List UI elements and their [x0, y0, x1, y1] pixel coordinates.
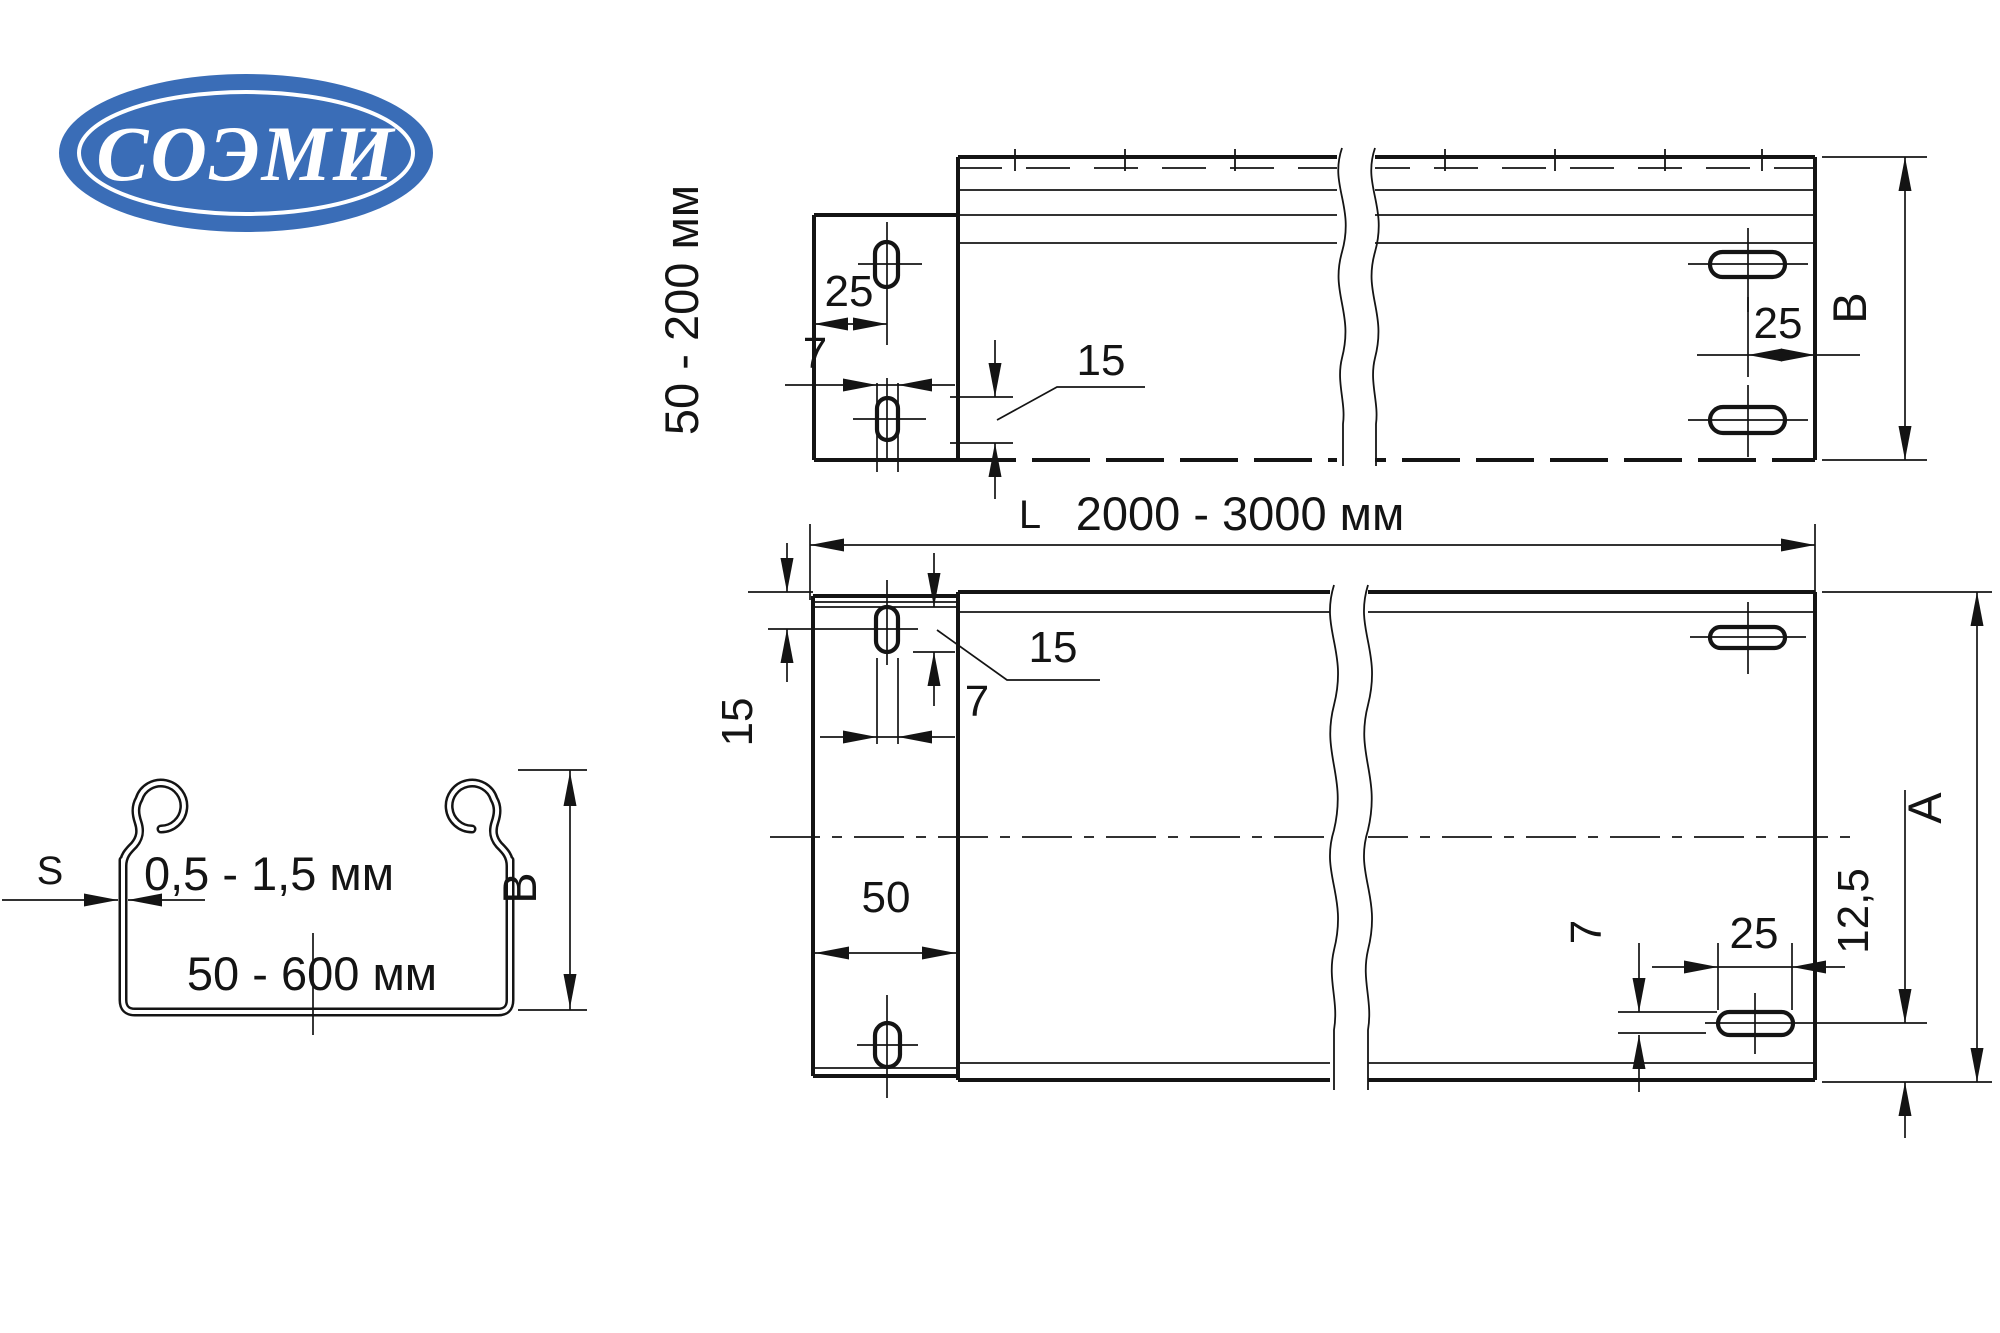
dim-label: 12,5 [1829, 868, 1878, 954]
plan-dim-7-top: 7 [820, 658, 989, 744]
side-dim-15: 15 [950, 336, 1145, 499]
plan-dim-50: 50 [813, 873, 958, 960]
plan-dim-15-slot: 15 [913, 553, 1100, 706]
dim-label: 25 [1754, 299, 1803, 348]
thickness-range-label: 0,5 - 1,5 мм [144, 847, 394, 900]
technical-drawing-page: СОЭМИ 50 - 200 мм [0, 0, 2000, 1333]
side-height-range-label: 50 - 200 мм [655, 185, 708, 435]
drawing-canvas: СОЭМИ 50 - 200 мм [0, 0, 2000, 1333]
length-value: 2000 - 3000 мм [1076, 487, 1405, 540]
dim-label: B [493, 872, 546, 903]
length-prefix: L [1019, 493, 1041, 537]
dim-label: 7 [803, 329, 827, 378]
width-range-label: 50 - 600 мм [187, 947, 437, 1000]
dim-label: 7 [1562, 920, 1611, 944]
dim-label: 25 [825, 267, 874, 316]
side-dim-7-left: 7 [785, 329, 955, 472]
dim-label: B [1823, 292, 1876, 323]
thickness-symbol: S [37, 849, 64, 893]
plan-dim-7-bottom: 7 [1562, 920, 1717, 1092]
dim-label: 25 [1730, 909, 1779, 958]
plan-view: 15 15 7 50 [713, 543, 1992, 1138]
plan-dim-15-edge: 15 [713, 543, 813, 746]
dim-label: A [1898, 792, 1951, 824]
dim-label: 7 [965, 677, 989, 726]
dim-label: 15 [1077, 336, 1126, 385]
logo: СОЭМИ [59, 74, 433, 232]
dim-label: 15 [1029, 623, 1078, 672]
slot-centerlines [853, 222, 1808, 462]
dim-label: 15 [713, 698, 762, 747]
side-dim-B: B [1822, 157, 1927, 460]
dim-label: 50 [862, 873, 911, 922]
section-view: S 0,5 - 1,5 мм 50 - 600 мм B [2, 770, 587, 1035]
length-dimension: L 2000 - 3000 мм [810, 487, 1815, 600]
logo-text: СОЭМИ [96, 110, 395, 197]
plan-dim-12-5: 12,5 [1829, 790, 1912, 1138]
side-view: 50 - 200 мм [655, 148, 1927, 499]
